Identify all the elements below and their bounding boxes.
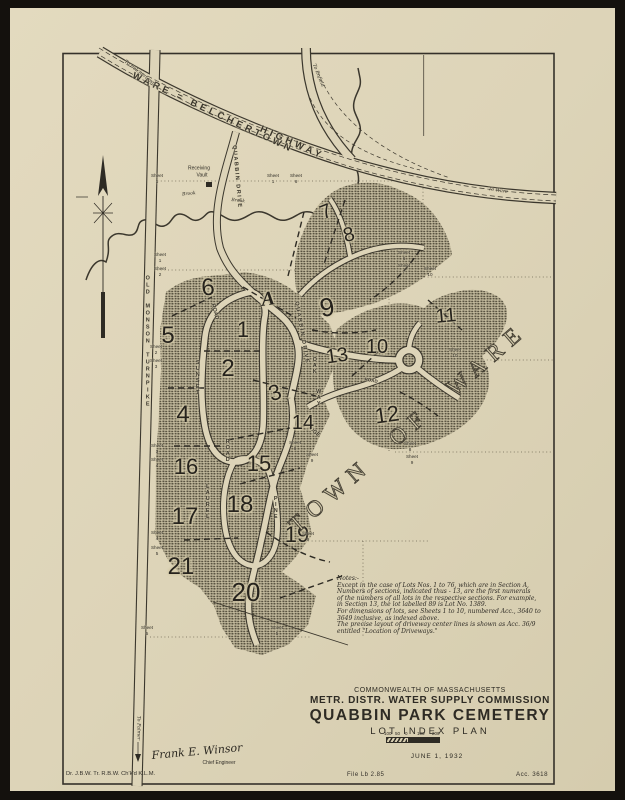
sheet-label-1: Sheet1 <box>267 173 279 184</box>
sheet-label-2: Sheet2 <box>150 344 162 355</box>
pine-ridge-label-1: PINE <box>272 496 278 520</box>
scanned-map-page: WARE = BELCHERTOWNHIGHWAYTo BelchertownT… <box>0 0 625 800</box>
sheet-label-10: Sheet10 <box>424 266 436 277</box>
map-drawing <box>0 0 625 800</box>
scale-tick: 0 <box>405 731 408 736</box>
title-block: COMMONWEALTH OF MASSACHUSETTS METR. DIST… <box>310 687 551 737</box>
section-number-1: 1 <box>237 319 249 341</box>
sheet-label-3: Sheet3 <box>150 358 162 369</box>
receiving-vault-icon <box>206 182 212 187</box>
sheet-label-5: Sheet5 <box>151 545 163 556</box>
scale-bar-graphic <box>386 737 440 743</box>
sheet-label-5: Sheet5 <box>271 625 283 636</box>
notes-block: Notes:- Except in the case of Lots Nos. … <box>337 576 553 635</box>
sheet-label-6: Sheet6 <box>398 250 410 261</box>
scale-tick: 50 <box>395 731 400 736</box>
section-number-15: 15 <box>247 453 271 475</box>
section-number-4: 4 <box>176 403 189 427</box>
map-date: JUNE 1, 1932 <box>411 753 463 760</box>
map-title: QUABBIN PARK CEMETERY <box>310 707 551 725</box>
sheet-label-4: Sheet4 <box>151 530 163 541</box>
section-number-5: 5 <box>161 324 174 348</box>
commission-line: METR. DISTR. WATER SUPPLY COMMISSION <box>310 695 551 706</box>
accession-number: Acc. 3618 <box>516 771 548 778</box>
sheet-label-3: Sheet3 <box>151 443 163 454</box>
sunset-road-label-1: SUNSET <box>194 360 200 396</box>
sheet-label-1: Sheet1 <box>151 173 163 184</box>
sheet-label-9: Sheet9 <box>406 454 418 465</box>
oak-way-label-2: WAY <box>315 389 321 407</box>
sheet-label-10: Sheet10 <box>449 347 461 358</box>
sheet-label-9: Sheet9 <box>306 452 318 463</box>
engineer-title: Chief Engineer <box>202 760 235 766</box>
sheet-label-7: Sheet7 <box>398 263 410 274</box>
sheet-label-4: Sheet4 <box>151 457 163 468</box>
section-number-13: 13 <box>325 345 350 368</box>
section-number-11: 11 <box>435 305 457 327</box>
sheet-label-8: Sheet8 <box>289 440 301 451</box>
sheet-label-1: Sheet1 <box>154 252 166 263</box>
old-monson-turnpike-label: OLD MONSON TURNPIKE <box>144 276 150 409</box>
section-number-10: 10 <box>366 337 388 357</box>
sheet-label-6: Sheet6 <box>290 173 302 184</box>
receiving-vault-label-1: Receiving <box>188 167 210 172</box>
section-number-16: 16 <box>174 456 198 478</box>
sheet-label-2: Sheet2 <box>154 266 166 277</box>
section-number-14: 14 <box>292 413 314 433</box>
section-number-17: 17 <box>172 505 199 529</box>
section-number-20: 20 <box>232 579 261 605</box>
commonwealth-line: COMMONWEALTH OF MASSACHUSETTS <box>310 687 551 694</box>
section-number-2: 2 <box>221 357 234 381</box>
section-number-6: 6 <box>200 276 215 301</box>
receiving-vault-label-2: Vault <box>196 174 207 179</box>
to-palmer-label: To Palmer <box>135 716 140 740</box>
laurel-road-label-1: LAUREL <box>204 484 210 520</box>
section-number-21: 21 <box>168 555 195 579</box>
sheet-label-5: Sheet5 <box>141 625 153 636</box>
scale-bar: 100 50 0 100 200 FT. <box>384 731 446 743</box>
file-number: File Lb 2.85 <box>347 772 384 778</box>
oak-way-label-1: OAK <box>311 357 317 375</box>
scale-tick: 100 <box>417 731 425 736</box>
section-number-A: A <box>260 288 276 310</box>
drafter-initials: Dr. J.B.W. Tr. R.B.W. Ch'k'd K.L.M. <box>66 771 155 777</box>
section-number-18: 18 <box>227 493 254 517</box>
scale-tick: 100 <box>384 731 392 736</box>
laurel-road-label-2: ROAD <box>224 439 230 463</box>
